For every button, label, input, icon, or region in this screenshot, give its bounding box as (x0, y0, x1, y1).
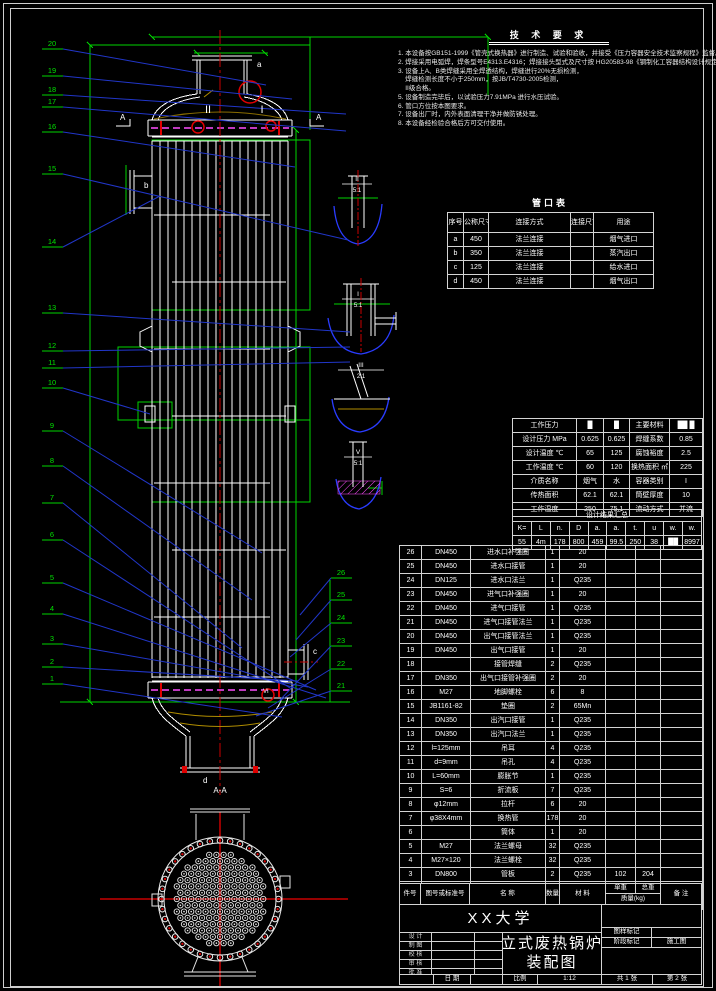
weld-mark-ii: II (205, 104, 211, 116)
scale-label: 比例 (502, 974, 538, 985)
bom-row: 5M27法兰螺母32Q235 (400, 840, 703, 854)
titleblock-blank-top (601, 904, 702, 928)
bom-header-remark: 备 注 (660, 883, 702, 905)
detail-1-scale: 5:1 (353, 188, 362, 194)
callout-balloon: 10 (48, 378, 56, 387)
detail-1-label: II (355, 176, 359, 183)
sign-label-design: 设 计 (400, 933, 432, 942)
technical-requirements-lines: 1. 本设备按GB151-1999《管壳式换热器》进行制造、试验和验收，并接受《… (398, 50, 700, 129)
callout-balloon: 26 (337, 568, 345, 577)
weld-detail-views (328, 170, 396, 509)
nozzle-col-connection: 连接方式 (489, 213, 571, 233)
technical-requirement-line: II级合格。 (398, 85, 700, 94)
technical-requirements-title: 技 术 要 求 (489, 28, 609, 45)
callout-balloon: 8 (50, 456, 54, 465)
detail-4-label: V (356, 449, 361, 456)
nozzle-row-d: d450 法兰连接 烟气出口 (448, 275, 654, 289)
callout-balloon: 4 (50, 604, 54, 613)
bottomrow-blank2 (470, 974, 503, 985)
bom-row: 23DN450进气口补强圈120 (400, 588, 703, 602)
weld-mark-vi: VI (263, 689, 269, 695)
bom-row: 22DN450进气口接管1Q235 (400, 602, 703, 616)
section-arrow-label-left: A (120, 113, 126, 122)
bom-header-itemno: 件号 (399, 883, 421, 905)
detail-3-scale: 2:1 (357, 374, 366, 380)
bom-row: 11d=9mm吊孔4Q235 (400, 756, 703, 770)
nozzle-col-dim: 连接尺寸 (571, 213, 594, 233)
design-parameter-row: 设计压力 MPa0.6250.625焊缝系数0.85 (513, 433, 703, 447)
bom-row: 13DN350出汽口法兰1Q235 (400, 728, 703, 742)
technical-requirement-line: 7. 设备出厂时，内外表面清理干净并做防锈处理。 (398, 111, 700, 120)
callout-balloon: 17 (48, 97, 56, 106)
signature-area: 设 计 制 图 校 核 审 核 批 准 (399, 932, 503, 975)
nozzle-col-use: 用途 (594, 213, 654, 233)
weld-mark-i: I (260, 104, 263, 116)
callout-balloon: 14 (48, 237, 56, 246)
design-parameter-table: 工作压力██主要材料██ █设计压力 MPa0.6250.625焊缝系数0.85… (512, 418, 703, 517)
drawing-title: 立式废热锅炉 装配图 (502, 932, 602, 975)
bom-row: 4M27×120法兰螺栓32Q235 (400, 854, 703, 868)
drawing-sheet: 2019181716151413121110987654321262524232… (0, 0, 716, 991)
callout-balloon: 2 (50, 657, 54, 666)
nozzle-row-c: c125 法兰连接 给水进口 (448, 261, 654, 275)
nozzle-c-label: c (313, 647, 317, 656)
detail-3-label: III (358, 362, 364, 369)
technical-requirement-line: 焊缝检测长度不小于250mm，按JB/T4730-2005检测， (398, 76, 700, 85)
callout-balloon: 25 (337, 590, 345, 599)
callout-balloon: 6 (50, 530, 54, 539)
callout-balloon: 18 (48, 85, 56, 94)
bom-header-material: 材 料 (559, 883, 606, 905)
technical-requirement-line: 1. 本设备按GB151-1999《管壳式换热器》进行制造、试验和验收，并接受《… (398, 50, 700, 59)
nozzle-row-a: a450 法兰连接 烟气进口 (448, 233, 654, 247)
drawing-title-line2: 装配图 (526, 954, 577, 973)
callout-balloon: 24 (337, 613, 345, 622)
detail-2-scale: 5:1 (354, 303, 363, 309)
technical-requirements: 技 术 要 求 1. 本设备按GB151-1999《管壳式换热器》进行制造、试验… (398, 28, 700, 129)
design-parameter-row: 工作压力██主要材料██ █ (513, 419, 703, 433)
technical-requirement-line: 3. 设备上A、B类焊缝采用全焊透结构，焊缝进行20%无损检测， (398, 68, 700, 77)
titleblock-blank-mid (601, 947, 702, 976)
callout-balloon: 12 (48, 341, 56, 350)
detail-4-scale: 5:1 (354, 461, 363, 467)
detail-2-label: I (357, 291, 359, 298)
callout-balloon: 23 (337, 636, 345, 645)
bom-row: 16M27地脚螺栓68 (400, 686, 703, 700)
callout-balloon: 1 (50, 674, 54, 683)
bom-row: 6筒体120 (400, 826, 703, 840)
bom-row: 21DN450进气口接管法兰1Q235 (400, 616, 703, 630)
callout-balloon: 19 (48, 66, 56, 75)
bom-row: 7φ38X4mm换热管17820 (400, 812, 703, 826)
bom-row: 10L=60mm膨胀节1Q235 (400, 770, 703, 784)
bom-row: 24DN125进水口法兰1Q235 (400, 574, 703, 588)
bom-row: 9S=6折流板7Q235 (400, 784, 703, 798)
bom-header-name: 名 称 (469, 883, 546, 905)
nozzle-col-id: 序号 (448, 213, 464, 233)
callout-balloon: 15 (48, 164, 56, 173)
design-parameter-row: 传热面积62.162.1筒壁厚度10 (513, 489, 703, 503)
technical-requirement-line: 8. 本设备经检验合格后方可交付使用。 (398, 120, 700, 129)
drawing-title-line1: 立式废热锅炉 (502, 935, 602, 954)
weld-detail-view-2 (328, 278, 396, 354)
bom-row: 26DN450进水口补强圈120 (400, 546, 703, 560)
section-aa-title: A-A (213, 786, 227, 795)
sheet-number: 第 2 张 (652, 974, 702, 985)
nozzle-a-label: a (257, 60, 262, 69)
bom-row: 14DN350出汽口接管1Q235 (400, 714, 703, 728)
callout-balloon: 21 (337, 681, 345, 690)
bom-header-drawingno: 图号或标准号 (420, 883, 470, 905)
design-parameter-row: 设计温度 ℃65125腐蚀裕度2.5 (513, 447, 703, 461)
callout-balloon: 16 (48, 122, 56, 131)
callout-balloon: 7 (50, 493, 54, 502)
bom-row: 18接管焊缝2Q235 (400, 658, 703, 672)
callout-balloon: 13 (48, 303, 56, 312)
sign-label-check: 校 核 (400, 951, 432, 960)
technical-requirement-line: 2. 焊接采用电弧焊，焊条型号E4313.E4316；焊接接头型式及尺寸按 HG… (398, 59, 700, 68)
section-arrow-label-right: A (316, 113, 322, 122)
nozzle-table: 序号 公称尺寸 连接方式 连接尺寸 用途 a450 法兰连接 烟气进口 b350… (447, 212, 654, 289)
sign-label-draft: 制 图 (400, 942, 432, 951)
sign-label-review: 审 核 (400, 960, 432, 969)
bom-row: 3DN800管板2Q235102204 (400, 868, 703, 882)
design-parameter-row: 介质名称烟气水容器类别I (513, 475, 703, 489)
scale-value: 1:12 (537, 974, 602, 985)
callout-balloon: 9 (50, 421, 54, 430)
company-name: XX大学 (399, 904, 602, 933)
nozzle-d-label: d (203, 776, 207, 785)
design-parameter-row: 工作温度 ℃60120换热面积 ㎡225 (513, 461, 703, 475)
callout-balloon: 20 (48, 39, 56, 48)
date-label: 日 期 (433, 974, 471, 985)
callout-balloon: 3 (50, 634, 54, 643)
bom-row: 20DN450出气口接管法兰1Q235 (400, 630, 703, 644)
callout-balloon: 22 (337, 659, 345, 668)
technical-requirement-line: 5. 设备制造完毕后，以试验压力7.91MPa 进行水压试验。 (398, 94, 700, 103)
nozzle-table-header: 序号 公称尺寸 连接方式 连接尺寸 用途 (448, 213, 654, 233)
nozzle-col-size: 公称尺寸 (464, 213, 489, 233)
bom-row: 19DN450出气口接管120 (400, 644, 703, 658)
bom-row: 15JB1161-82垫圈265Mn (400, 700, 703, 714)
callout-balloon: 5 (50, 573, 54, 582)
bom-row: 8φ12mm拉杆620 (400, 798, 703, 812)
bom-row: 25DN450进水口接管120 (400, 560, 703, 574)
bom-table: 26DN450进水口补强圈12025DN450进水口接管12024DN125进水… (399, 545, 703, 910)
nozzle-table-title: 管口表 (447, 196, 653, 209)
design-summary-row: K=Ln.Da.a.t.uw.w. (513, 522, 702, 536)
bom-header-qty: 数量 (545, 883, 560, 905)
callout-balloon: 11 (48, 358, 56, 367)
bottomrow-blank1 (399, 974, 434, 985)
bom-row: 12l=125mm吊耳4Q235 (400, 742, 703, 756)
bom-row: 17DN350出气口接管补强圈220 (400, 672, 703, 686)
sheet-total: 共 1 张 (601, 974, 653, 985)
nozzle-b-label: b (144, 181, 149, 190)
nozzle-row-b: b350 法兰连接 蒸汽出口 (448, 247, 654, 261)
